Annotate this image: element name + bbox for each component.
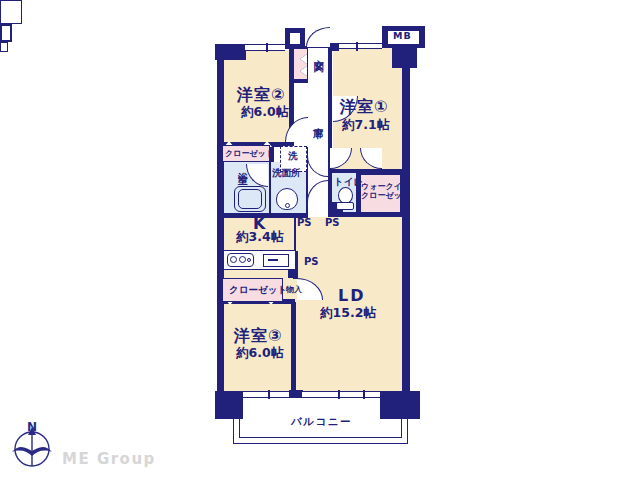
wall-segment <box>293 79 308 83</box>
room-label-yoshitsu3: 洋室③ <box>234 327 283 345</box>
toilet-tank-icon <box>336 202 354 210</box>
monoire-label: 物入 <box>286 285 302 294</box>
wall-segment <box>392 48 417 68</box>
window-tick <box>363 390 365 399</box>
compass-logo-svg: N <box>8 418 58 472</box>
ps-label: PS <box>304 256 319 268</box>
shoe-cabinet-mark <box>300 54 307 64</box>
washbasin-drain <box>285 203 290 208</box>
storage-area <box>0 0 22 24</box>
ps-label: PS <box>325 217 340 229</box>
shoe-cabinet-mark <box>300 66 307 76</box>
room-label-ld: LD <box>338 287 365 305</box>
room-size-yoshitsu3: 約6.0帖 <box>236 346 283 360</box>
balcony-door-window <box>302 391 380 398</box>
balcony-label: バルコニー <box>291 415 352 427</box>
closet-top-label: クローゼット <box>225 149 274 158</box>
rouka-label: 廊下 <box>312 120 324 124</box>
wall-segment <box>217 44 224 392</box>
room-label-yoshitsu1: 洋室① <box>340 98 389 116</box>
wall-segment <box>289 390 303 398</box>
closet-bottom-label: クローゼット <box>229 285 287 296</box>
wall-segment <box>215 391 243 419</box>
door-arc-hall <box>307 180 328 202</box>
wic-label: ウォークイン クローゼット <box>361 182 410 200</box>
wall-segment <box>269 162 271 216</box>
wall-segment <box>328 44 332 213</box>
stove-burner <box>239 256 246 263</box>
room-size-kitchen: 約3.4帖 <box>236 230 283 244</box>
wall-segment <box>380 391 420 419</box>
laundry-label: 洗 <box>288 151 298 162</box>
compass-logo: N <box>8 418 58 472</box>
balcony-door-window <box>243 391 289 398</box>
window-tick <box>268 390 270 399</box>
room-size-yoshitsu1: 約7.1帖 <box>342 118 389 132</box>
ps-label: PS <box>297 217 312 229</box>
genkan-label: 玄関 <box>313 52 325 56</box>
room-size-yoshitsu2: 約6.0帖 <box>241 105 288 119</box>
washroom-label: 洗面所 <box>272 168 301 179</box>
pipe-space-box <box>0 42 8 52</box>
faucet-icon <box>268 259 278 261</box>
stove-burner <box>230 256 237 263</box>
window-tick <box>266 43 268 52</box>
room-label-yoshitsu2: 洋室② <box>237 86 286 104</box>
window-tick <box>338 390 340 399</box>
wall-segment <box>291 302 296 391</box>
bathtub-inner <box>238 189 262 209</box>
mb-label: MB <box>393 31 412 42</box>
door-arc-entrance <box>306 27 330 47</box>
stove-burner <box>247 258 251 262</box>
entrance-porch-column <box>285 28 305 49</box>
bath-label: 浴室 <box>237 164 249 168</box>
window <box>339 43 382 49</box>
window <box>245 44 285 51</box>
pipe-space-box <box>0 24 12 42</box>
brand-watermark: ME Group <box>62 450 156 468</box>
door-arc-washroom <box>307 156 328 177</box>
room-size-ld: 約15.2帖 <box>320 306 376 320</box>
window-tick <box>356 42 358 51</box>
wall-segment <box>402 66 410 393</box>
wall-segment <box>294 217 296 251</box>
toilet-label: トイレ <box>334 177 363 188</box>
floor-plan: MB <box>0 0 640 480</box>
